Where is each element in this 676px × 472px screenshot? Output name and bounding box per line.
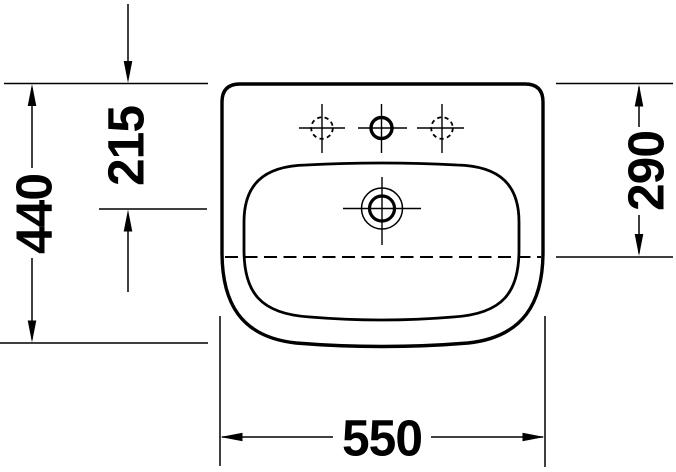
- dimension-440-arrow-down: [28, 321, 37, 343]
- tap-hole-left: [299, 104, 345, 153]
- washbasin-technical-drawing: 440 215 290 550: [0, 0, 676, 472]
- dimension-215-arrow-up: [124, 210, 133, 232]
- dimension-290-arrow-down: [635, 234, 644, 256]
- dimension-550-arrow-left: [221, 433, 243, 442]
- dimension-550: 550: [220, 316, 545, 467]
- technical-drawing-page: 440 215 290 550: [0, 0, 676, 472]
- dimension-290-arrow-up: [635, 85, 644, 107]
- dimension-290: 290: [556, 84, 674, 258]
- tap-hole-right: [417, 104, 464, 153]
- dimension-label-overflow-line-depth: 290: [617, 131, 674, 211]
- dimension-label-overall-depth: 440: [5, 174, 62, 254]
- dimension-label-overall-width: 550: [342, 409, 422, 466]
- dimension-440-arrow-up: [28, 84, 37, 106]
- dimension-215-arrow-down: [124, 61, 133, 83]
- overflow-drain-hole: [343, 177, 421, 245]
- tap-hole-center: [358, 104, 407, 153]
- dimension-215: 215: [97, 4, 207, 292]
- dimension-550-arrow-right: [523, 433, 545, 442]
- dimension-label-tap-hole-offset: 215: [97, 106, 154, 186]
